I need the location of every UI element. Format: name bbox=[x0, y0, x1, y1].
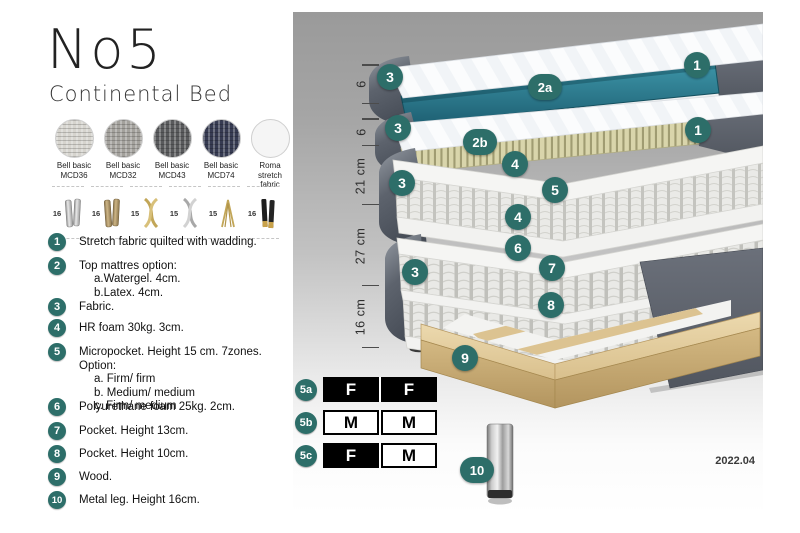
legend-badge: 6 bbox=[48, 398, 66, 416]
legend-badge: 3 bbox=[48, 298, 66, 316]
legend-badge: 10 bbox=[48, 491, 66, 509]
firmness-cell: F bbox=[323, 377, 379, 402]
leg-twist-silver-icon bbox=[180, 197, 200, 229]
firmness-cell: M bbox=[381, 410, 437, 435]
legend-item-7: 7 Pocket. Height 13cm. bbox=[48, 422, 188, 440]
swatch-mcd36: Bell basicMCD36 bbox=[52, 119, 96, 190]
fabric-swatch-icon bbox=[251, 119, 290, 158]
tick bbox=[362, 118, 379, 120]
badge-2b: 2b bbox=[463, 129, 497, 155]
scale-segment-4: 27 cm bbox=[333, 205, 385, 286]
firmness-cell: F bbox=[381, 377, 437, 402]
swatch-code: MCD74 bbox=[207, 171, 234, 180]
swatch-mcd32: Bell basicMCD32 bbox=[101, 119, 145, 190]
leg-option-1: 16 bbox=[50, 186, 86, 239]
legend-item-2: 2 Top mattres option: a.Watergel. 4cm. b… bbox=[48, 257, 181, 300]
legend-text: Pocket. Height 10cm. bbox=[79, 445, 188, 463]
swatch-name: Bell basic bbox=[106, 161, 140, 170]
badge-3-layer4: 3 bbox=[402, 259, 428, 285]
legend-text: Micropocket. Height 15 cm. 7zones. Optio… bbox=[79, 343, 298, 373]
leg-cylinder-black-gold-icon bbox=[258, 197, 278, 229]
firmness-row-5a: 5a F F bbox=[295, 377, 437, 402]
legend-badge: 8 bbox=[48, 445, 66, 463]
legend-item-6: 6 Polyurethane foam 25kg. 2cm. bbox=[48, 398, 235, 416]
legend-text: HR foam 30kg. 3cm. bbox=[79, 319, 184, 337]
swatch-code: MCD43 bbox=[158, 171, 185, 180]
legend-item-8: 8 Pocket. Height 10cm. bbox=[48, 445, 188, 463]
legend-item-3: 3 Fabric. bbox=[48, 298, 114, 316]
tick bbox=[362, 347, 379, 349]
legend-badge: 1 bbox=[48, 233, 66, 251]
leg-height: 16 bbox=[53, 209, 61, 218]
leg-option-5: 15 bbox=[206, 186, 242, 239]
scale-segment-3: 21 cm bbox=[333, 146, 385, 205]
badge-3-layer3: 3 bbox=[389, 170, 415, 196]
scale-label: 16 cm bbox=[354, 299, 368, 336]
leg-height: 15 bbox=[170, 209, 178, 218]
legend-item-4: 4 HR foam 30kg. 3cm. bbox=[48, 319, 184, 337]
legend-badge: 7 bbox=[48, 422, 66, 440]
scale-label: 6 bbox=[354, 80, 368, 87]
legend-badge: 2 bbox=[48, 257, 66, 275]
badge-10: 10 bbox=[460, 457, 494, 483]
swatch-roma: Romastretch fabric bbox=[248, 119, 292, 190]
leg-hairpin-gold-icon bbox=[219, 197, 239, 229]
swatch-name: Bell basic bbox=[204, 161, 238, 170]
scale-label: 21 cm bbox=[354, 157, 368, 194]
scale-label: 27 cm bbox=[354, 227, 368, 264]
firmness-cell: F bbox=[323, 443, 379, 468]
legend-sub: a.Watergel. 4cm. bbox=[94, 273, 181, 287]
badge-7: 7 bbox=[539, 255, 565, 281]
badge-4-top: 4 bbox=[502, 151, 528, 177]
firmness-badge: 5a bbox=[295, 379, 317, 401]
fabric-swatches: Bell basicMCD36 Bell basicMCD32 Bell bas… bbox=[52, 119, 292, 190]
badge-9: 9 bbox=[452, 345, 478, 371]
fabric-swatch-icon bbox=[202, 119, 241, 158]
legend-text: Stretch fabric quilted with wadding. bbox=[79, 233, 257, 251]
swatch-name: Bell basic bbox=[155, 161, 189, 170]
leg-cylinder-bronze-icon bbox=[102, 197, 122, 229]
page-subtitle: Continental Bed bbox=[49, 82, 232, 106]
badge-5: 5 bbox=[542, 177, 568, 203]
firmness-row-5c: 5c F M bbox=[295, 443, 437, 468]
fabric-swatch-icon bbox=[153, 119, 192, 158]
legend-text: Wood. bbox=[79, 468, 112, 486]
badge-1-layer2: 1 bbox=[685, 117, 711, 143]
legend-sub: a. Firm/ firm bbox=[94, 373, 298, 387]
leg-options: 16 16 15 15 bbox=[50, 186, 281, 239]
badge-6: 6 bbox=[505, 235, 531, 261]
leg-height: 16 bbox=[248, 209, 256, 218]
scale-segment-5: 16 cm bbox=[333, 286, 385, 348]
leg-height: 15 bbox=[131, 209, 139, 218]
swatch-name: Bell basic bbox=[57, 161, 91, 170]
firmness-cell: M bbox=[323, 410, 379, 435]
scale-segment-1: 6 bbox=[333, 64, 385, 104]
scale-segment-2: 6 bbox=[333, 118, 385, 146]
legend-item-9: 9 Wood. bbox=[48, 468, 112, 486]
legend-text: Top mattres option: bbox=[79, 257, 181, 273]
leg-height: 16 bbox=[92, 209, 100, 218]
fabric-swatch-icon bbox=[55, 119, 94, 158]
legend-badge: 5 bbox=[48, 343, 66, 361]
leg-option-4: 15 bbox=[167, 186, 203, 239]
version-label: 2022.04 bbox=[715, 455, 755, 467]
badge-4-bottom: 4 bbox=[505, 204, 531, 230]
firmness-badge: 5b bbox=[295, 412, 317, 434]
leg-option-3: 15 bbox=[128, 186, 164, 239]
diagram-panel: 6 6 21 cm 27 cm 16 cm 1 2a 3 1 2b bbox=[293, 12, 763, 515]
leg-cylinder-silver-icon bbox=[63, 197, 83, 229]
swatch-code: MCD36 bbox=[60, 171, 87, 180]
badge-1-top: 1 bbox=[684, 52, 710, 78]
scale-label: 6 bbox=[354, 128, 368, 135]
legend-text: Pocket. Height 13cm. bbox=[79, 422, 188, 440]
firmness-cell: M bbox=[381, 443, 437, 468]
badge-2a: 2a bbox=[528, 74, 562, 100]
page-title: No5 bbox=[47, 18, 164, 81]
legend-badge: 9 bbox=[48, 468, 66, 486]
legend-item-10: 10 Metal leg. Height 16cm. bbox=[48, 491, 200, 509]
swatch-mcd74: Bell basicMCD74 bbox=[199, 119, 243, 190]
leg-option-6: 16 bbox=[245, 186, 281, 239]
leg-twist-gold-icon bbox=[141, 197, 161, 229]
swatch-code: MCD32 bbox=[109, 171, 136, 180]
tick bbox=[362, 103, 379, 105]
fabric-swatch-icon bbox=[104, 119, 143, 158]
swatch-mcd43: Bell basicMCD43 bbox=[150, 119, 194, 190]
leg-height: 15 bbox=[209, 209, 217, 218]
firmness-row-5b: 5b M M bbox=[295, 410, 437, 435]
legend-item-1: 1 Stretch fabric quilted with wadding. bbox=[48, 233, 257, 251]
legend-text: Metal leg. Height 16cm. bbox=[79, 491, 200, 509]
leg-option-2: 16 bbox=[89, 186, 125, 239]
legend-text: Fabric. bbox=[79, 298, 114, 316]
tick bbox=[362, 64, 379, 66]
firmness-badge: 5c bbox=[295, 445, 317, 467]
product-sheet: No5 Continental Bed Bell basicMCD36 Bell… bbox=[0, 0, 800, 533]
swatch-name: Roma bbox=[259, 161, 280, 170]
badge-3-layer1: 3 bbox=[377, 64, 403, 90]
legend-badge: 4 bbox=[48, 319, 66, 337]
badge-3-layer2: 3 bbox=[385, 115, 411, 141]
legend-text: Polyurethane foam 25kg. 2cm. bbox=[79, 398, 235, 416]
badge-8: 8 bbox=[538, 292, 564, 318]
